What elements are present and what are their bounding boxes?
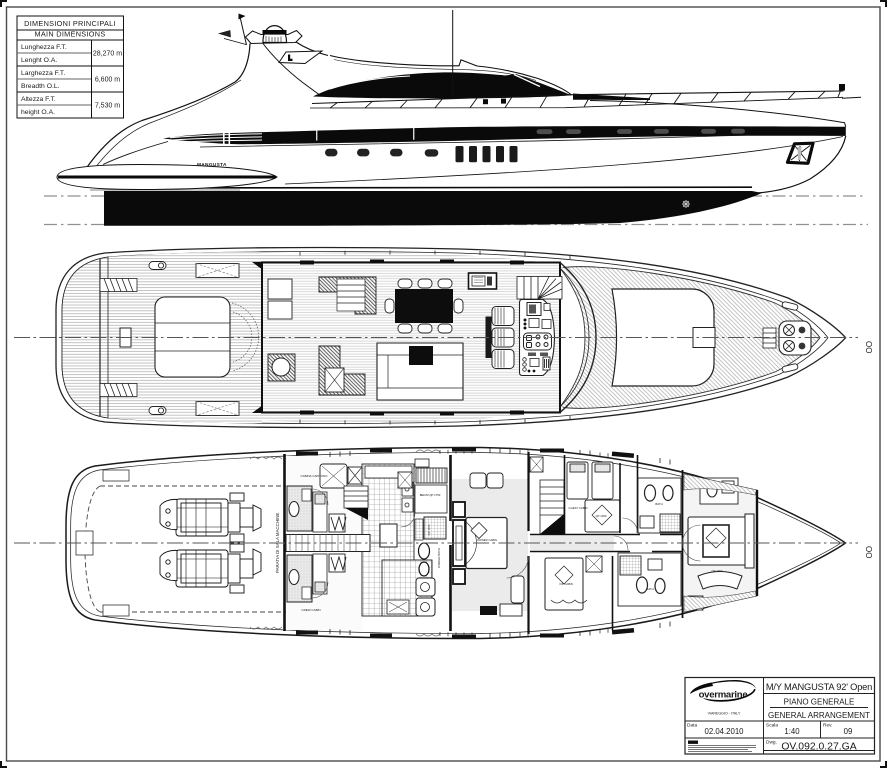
svg-text:QP 1500: QP 1500 xyxy=(712,569,723,573)
svg-text:VIP CABIN: VIP CABIN xyxy=(559,582,573,586)
svg-text:GENERAL ARRANGEMENT: GENERAL ARRANGEMENT xyxy=(768,711,870,720)
svg-text:QP 1450: QP 1450 xyxy=(596,514,607,518)
svg-text:MAIN DIMENSIONS: MAIN DIMENSIONS xyxy=(35,30,106,39)
svg-text:OO: OO xyxy=(864,341,873,353)
svg-text:M/Y MANGUSTA 92' Open: M/Y MANGUSTA 92' Open xyxy=(766,682,872,692)
svg-text:VIAREGGIO - ITALY: VIAREGGIO - ITALY xyxy=(708,712,741,716)
svg-text:CABINA CAPITANO: CABINA CAPITANO xyxy=(301,474,329,478)
svg-text:OO: OO xyxy=(864,546,873,558)
svg-text:Rev.: Rev. xyxy=(823,723,833,729)
svg-text:02.04.2010: 02.04.2010 xyxy=(704,727,744,736)
svg-text:Lunghezza F.T.: Lunghezza F.T. xyxy=(21,44,67,51)
svg-text:OWNER CABIN: OWNER CABIN xyxy=(477,538,497,542)
svg-text:CREW CABIN: CREW CABIN xyxy=(301,608,320,612)
svg-text:1:40: 1:40 xyxy=(784,727,800,736)
svg-text:Lenght O.A.: Lenght O.A. xyxy=(21,57,57,64)
svg-text:OV.092.0.27.GA: OV.092.0.27.GA xyxy=(781,742,856,753)
svg-text:GUEST CABIN: GUEST CABIN xyxy=(569,506,588,510)
svg-text:QP 1150: QP 1150 xyxy=(427,524,431,535)
svg-text:OWNER BATH: OWNER BATH xyxy=(437,548,441,568)
svg-text:Altezza F.T.: Altezza F.T. xyxy=(21,96,56,103)
svg-text:overmarine: overmarine xyxy=(699,690,748,701)
svg-text:28,270 m: 28,270 m xyxy=(93,51,122,58)
svg-text:DIMENSIONI PRINCIPALI: DIMENSIONI PRINCIPALI xyxy=(24,19,116,28)
svg-text:PIANO GENERALE: PIANO GENERALE xyxy=(784,698,855,707)
svg-text:height O.A.: height O.A. xyxy=(21,109,55,116)
svg-text:Data: Data xyxy=(687,723,697,729)
svg-text:BATH: BATH xyxy=(646,587,653,591)
svg-text:BATH: BATH xyxy=(655,502,662,506)
svg-text:BED/M QP 1750: BED/M QP 1750 xyxy=(420,493,441,497)
svg-text:09: 09 xyxy=(844,727,853,736)
svg-text:Scala: Scala xyxy=(766,723,778,729)
svg-text:Larghezza F.T.: Larghezza F.T. xyxy=(21,70,65,77)
svg-text:Breadth O.L.: Breadth O.L. xyxy=(21,83,60,90)
svg-text:6,600 m: 6,600 m xyxy=(95,77,120,84)
svg-text:7,530 m: 7,530 m xyxy=(95,103,120,110)
svg-text:Dwg.: Dwg. xyxy=(766,740,777,746)
